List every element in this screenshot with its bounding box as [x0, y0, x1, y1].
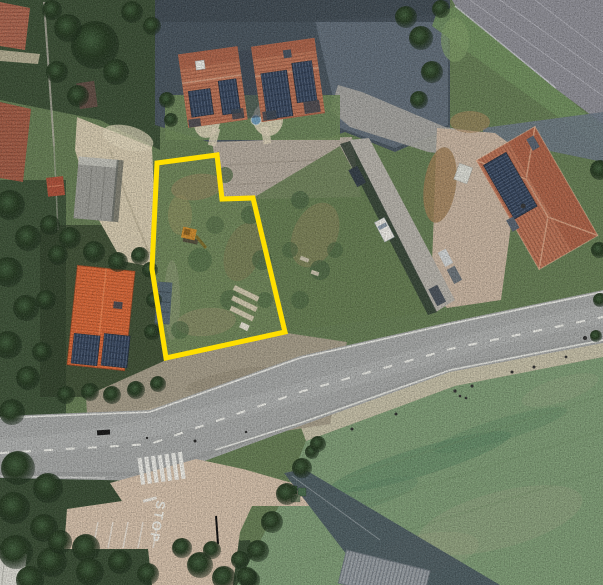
- aerial-photo: STOP: [0, 0, 603, 585]
- photo-grain-light: [0, 0, 603, 585]
- aerial-photo-canvas: STOP: [0, 0, 603, 585]
